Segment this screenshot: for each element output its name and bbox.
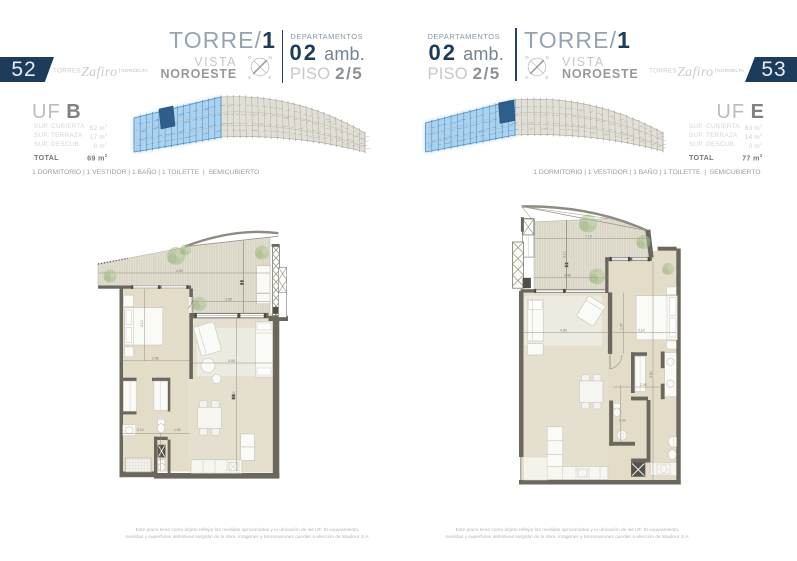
svg-text:1.60: 1.60	[174, 428, 181, 432]
svg-text:2.98: 2.98	[152, 357, 159, 361]
svg-text:3.10: 3.10	[140, 320, 144, 327]
svg-text:3.10: 3.10	[563, 251, 567, 258]
svg-text:1.97: 1.97	[620, 323, 624, 330]
svg-text:4.93: 4.93	[176, 269, 183, 273]
svg-text:O: O	[248, 55, 252, 60]
svg-text:3.50: 3.50	[232, 391, 236, 398]
svg-text:3.80: 3.80	[649, 371, 653, 378]
svg-text:S: S	[248, 75, 251, 80]
svg-text:7.19: 7.19	[585, 234, 592, 238]
svg-text:2.05: 2.05	[640, 383, 647, 387]
svg-text:O: O	[525, 55, 529, 60]
svg-text:1.42: 1.42	[619, 419, 626, 423]
svg-text:2.30: 2.30	[156, 448, 160, 455]
svg-text:3.48: 3.48	[564, 274, 571, 278]
svg-text:E: E	[269, 75, 272, 80]
svg-text:3.98: 3.98	[225, 297, 232, 301]
svg-text:N: N	[269, 55, 272, 60]
svg-text:S: S	[525, 75, 528, 80]
svg-text:2.10: 2.10	[137, 428, 144, 432]
svg-text:4.50: 4.50	[560, 328, 567, 332]
svg-text:N: N	[546, 55, 549, 60]
svg-text:4.08: 4.08	[228, 359, 235, 363]
svg-text:2.10: 2.10	[638, 328, 645, 332]
svg-text:E: E	[546, 75, 549, 80]
